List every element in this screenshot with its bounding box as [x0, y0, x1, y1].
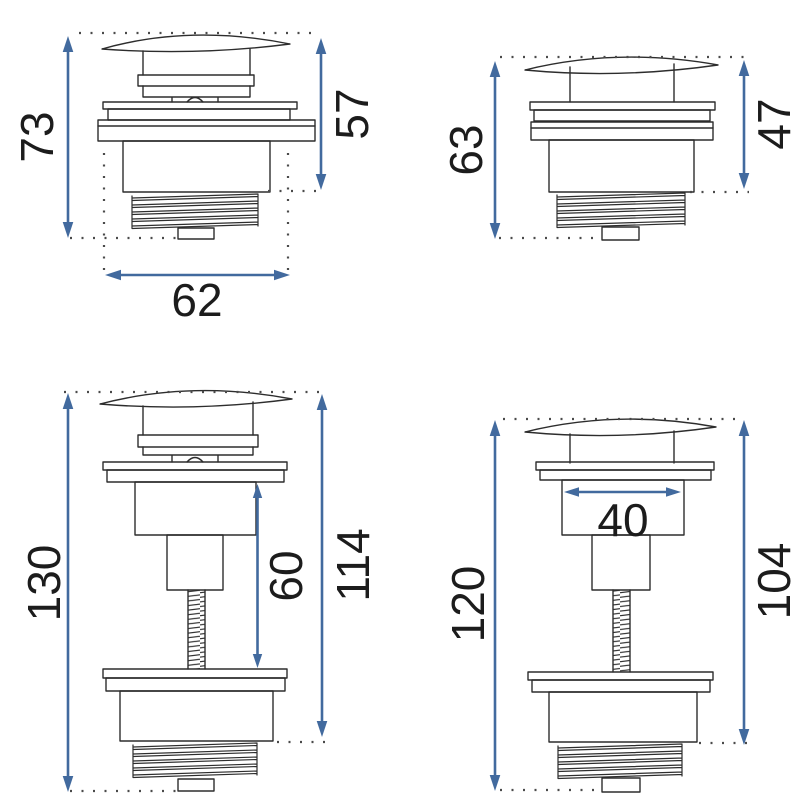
- arrowhead-down-icon: [490, 775, 501, 791]
- arrowhead-up-icon: [317, 394, 328, 410]
- guide-block: [167, 535, 223, 590]
- outlet-stub: [178, 779, 214, 791]
- arrowhead-down-icon: [63, 222, 74, 238]
- thread-lines: [558, 744, 682, 779]
- figure-top-right: 63 47: [440, 57, 800, 240]
- arrowhead-down-icon: [739, 173, 750, 189]
- body: [123, 141, 270, 192]
- arrowhead-down-icon: [63, 776, 74, 792]
- arrowhead-left-icon: [564, 487, 579, 496]
- lower-body: [120, 691, 273, 741]
- threaded-rod: [189, 590, 205, 669]
- cap-cylinder: [143, 49, 250, 75]
- flange-base: [107, 470, 284, 482]
- flange-rim: [103, 102, 297, 109]
- dimension-label: 57: [326, 88, 378, 139]
- arrowhead-up-icon: [490, 420, 501, 436]
- dimension-exposed-thread-length: 60: [253, 484, 312, 668]
- technical-drawing-canvas: 73 57 62 63: [0, 0, 804, 809]
- outlet-stub: [602, 778, 640, 792]
- flange-base: [531, 122, 713, 140]
- threaded-rod: [614, 590, 630, 672]
- dimension-upper-height: 47: [739, 60, 800, 189]
- flange-mid: [108, 109, 290, 120]
- cap-ring: [138, 435, 258, 447]
- flange-rim: [536, 462, 714, 470]
- outlet-stub: [178, 228, 214, 239]
- lower-flange-base: [532, 680, 710, 692]
- arrowhead-up-icon: [739, 60, 750, 76]
- arrowhead-left-icon: [105, 270, 121, 281]
- cap-dome: [525, 419, 716, 435]
- cap-dome: [100, 391, 292, 407]
- arrowhead-down-icon: [490, 223, 501, 239]
- cap-stem: [143, 86, 250, 102]
- arrowhead-up-icon: [490, 61, 501, 77]
- flange-base: [98, 120, 315, 141]
- dimension-label: 130: [18, 545, 70, 622]
- dimension-label: 60: [260, 550, 312, 601]
- arrowhead-up-icon: [316, 38, 327, 54]
- dimension-flange-width: 62: [105, 270, 290, 326]
- arrowhead-up-icon: [739, 420, 750, 436]
- thread-lines: [133, 743, 257, 778]
- dimension-label: 63: [440, 124, 492, 175]
- dimension-total-height: 120: [442, 420, 500, 791]
- lower-flange-base: [106, 678, 285, 691]
- arrowhead-up-icon: [63, 36, 74, 52]
- cap-dome: [102, 35, 290, 51]
- arrowhead-right-icon: [274, 270, 290, 281]
- thread-lines: [557, 193, 685, 228]
- dimension-total-height: 73: [11, 36, 73, 238]
- arrowhead-up-icon: [253, 484, 262, 498]
- dimension-label: 40: [597, 494, 648, 546]
- lower-flange-rim: [528, 672, 713, 680]
- lower-body: [549, 692, 697, 742]
- dimension-upper-height: 57: [316, 38, 378, 190]
- drain-plug-dimension-diagram: 73 57 62 63: [0, 0, 804, 809]
- figure-top-left: 73 57 62: [11, 33, 378, 326]
- lower-flange-rim: [103, 669, 287, 678]
- dimension-label: 73: [11, 111, 63, 162]
- thread-lines: [132, 194, 258, 229]
- upper-body: [135, 482, 256, 535]
- arrowhead-down-icon: [739, 729, 750, 745]
- dimension-upper-height: 114: [317, 394, 379, 737]
- dimension-total-height: 63: [440, 61, 500, 239]
- dimension-label: 114: [327, 528, 379, 601]
- arrowhead-down-icon: [316, 174, 327, 190]
- dimension-upper-height: 104: [739, 420, 800, 745]
- dimension-body-width: 40: [564, 487, 681, 546]
- outlet-stub: [602, 227, 639, 240]
- flange-rim: [530, 102, 715, 110]
- arrowhead-down-icon: [253, 654, 262, 668]
- dimension-total-height: 130: [18, 393, 73, 792]
- cap-stem: [143, 447, 253, 462]
- cap-dome: [525, 57, 718, 73]
- extension-dotted-lines: [70, 33, 318, 271]
- figure-bottom-right: 120 40 104: [442, 419, 800, 792]
- body: [549, 140, 694, 192]
- dimension-label: 62: [171, 274, 222, 326]
- dimension-label: 47: [748, 98, 800, 149]
- dimension-label: 104: [748, 543, 800, 620]
- arrowhead-right-icon: [666, 487, 681, 496]
- figure-bottom-left: 130 60 114: [18, 391, 379, 792]
- arrowhead-up-icon: [63, 393, 74, 409]
- flange-mid: [534, 110, 710, 121]
- flange-rim: [103, 462, 287, 470]
- cap-cylinder: [570, 64, 674, 102]
- flange-base: [540, 470, 711, 480]
- arrowhead-down-icon: [317, 721, 328, 737]
- dimension-label: 120: [442, 566, 494, 643]
- cap-ring: [138, 75, 254, 86]
